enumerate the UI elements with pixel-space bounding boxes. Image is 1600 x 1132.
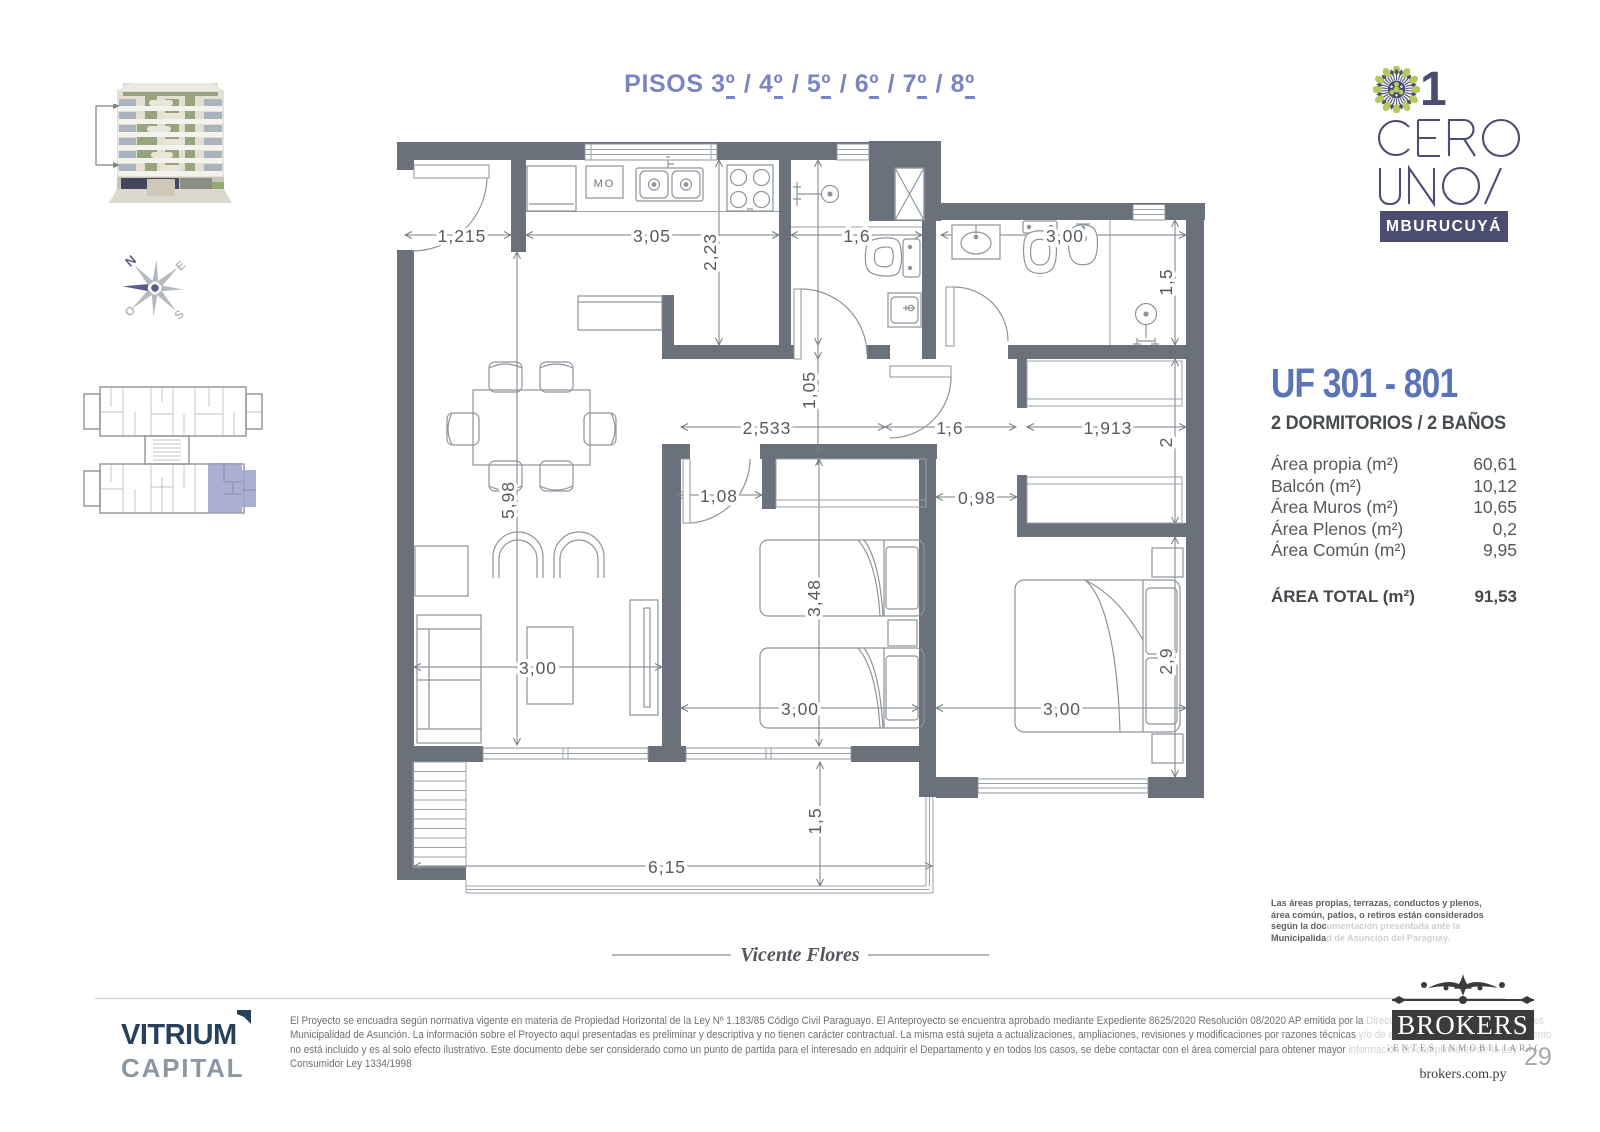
svg-text:3,00: 3,00 <box>1046 226 1084 246</box>
svg-text:1,05: 1,05 <box>799 371 819 409</box>
svg-text:5,98: 5,98 <box>498 481 518 519</box>
svg-text:2,23: 2,23 <box>700 233 720 271</box>
svg-text:2: 2 <box>1156 437 1176 448</box>
svg-text:0,98: 0,98 <box>958 488 996 508</box>
svg-text:1,5: 1,5 <box>1156 268 1176 295</box>
svg-text:3,48: 3,48 <box>804 579 824 617</box>
svg-text:3,00: 3,00 <box>781 699 819 719</box>
svg-text:1,08: 1,08 <box>700 486 738 506</box>
svg-text:1,6: 1,6 <box>936 418 963 438</box>
svg-text:1,913: 1,913 <box>1084 418 1133 438</box>
svg-text:1,5: 1,5 <box>805 807 825 834</box>
svg-text:3,05: 3,05 <box>633 226 671 246</box>
svg-text:6,15: 6,15 <box>648 857 686 877</box>
svg-text:3,00: 3,00 <box>519 658 557 678</box>
svg-text:1,215: 1,215 <box>438 226 487 246</box>
svg-text:2,9: 2,9 <box>1156 647 1176 674</box>
svg-text:2,533: 2,533 <box>743 418 792 438</box>
svg-text:3,00: 3,00 <box>1043 699 1081 719</box>
svg-text:1,6: 1,6 <box>843 226 870 246</box>
svg-text:MO: MO <box>594 178 616 190</box>
